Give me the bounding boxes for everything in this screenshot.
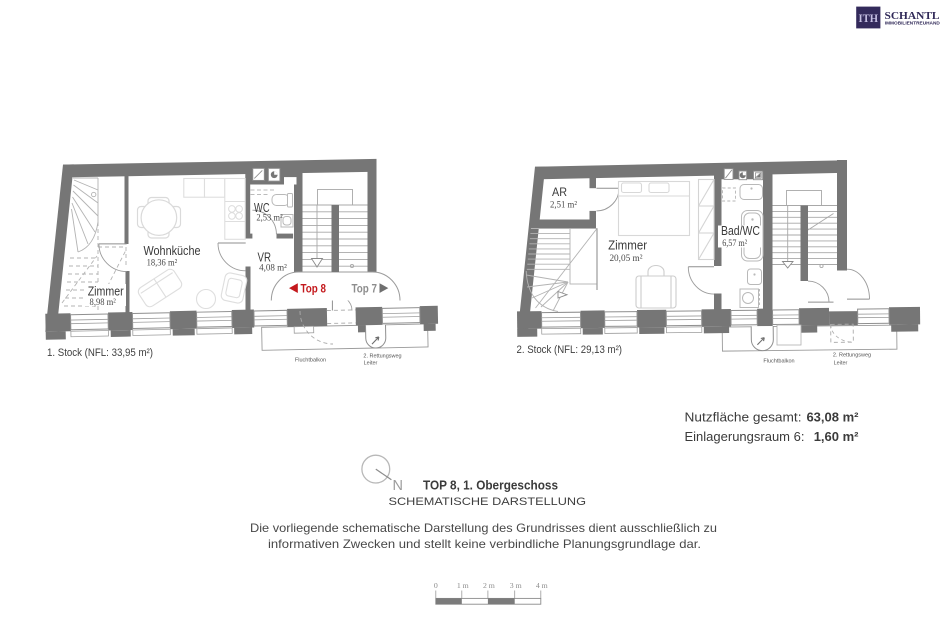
svg-text:6,57 m²: 6,57 m² <box>722 238 747 249</box>
svg-text:63,08 m²: 63,08 m² <box>806 410 859 425</box>
svg-text:1,60 m²: 1,60 m² <box>814 429 859 444</box>
svg-text:4,08 m²: 4,08 m² <box>259 263 287 274</box>
svg-text:2. Rettungsweg: 2. Rettungsweg <box>833 353 871 359</box>
svg-text:informativen Zwecken und stell: informativen Zwecken und stellt keine ve… <box>268 537 701 551</box>
svg-text:Leiter: Leiter <box>364 361 378 367</box>
svg-text:Wohnküche: Wohnküche <box>144 243 201 258</box>
svg-text:3 m: 3 m <box>510 581 522 590</box>
svg-text:18,36 m²: 18,36 m² <box>147 257 178 268</box>
svg-text:AR: AR <box>552 185 567 199</box>
svg-text:8,98 m²: 8,98 m² <box>90 297 116 308</box>
svg-text:Einlagerungsraum 6:: Einlagerungsraum 6: <box>685 429 805 444</box>
svg-text:20,05 m²: 20,05 m² <box>609 253 642 264</box>
svg-text:TOP 8, 1. Obergeschoss: TOP 8, 1. Obergeschoss <box>423 479 558 493</box>
svg-text:Top 7: Top 7 <box>352 282 378 296</box>
svg-text:Fluchtbalkon: Fluchtbalkon <box>763 359 794 365</box>
svg-text:Die vorliegende schematische D: Die vorliegende schematische Darstellung… <box>250 521 717 535</box>
svg-text:0: 0 <box>434 581 438 590</box>
svg-text:2 m: 2 m <box>483 581 495 590</box>
svg-text:Fluchtbalkon: Fluchtbalkon <box>295 358 326 364</box>
svg-text:1 m: 1 m <box>457 581 469 590</box>
svg-text:Bad/WC: Bad/WC <box>721 224 760 238</box>
svg-text:Leiter: Leiter <box>834 361 848 367</box>
svg-text:N: N <box>393 478 403 494</box>
svg-text:1. Stock (NFL: 33,95 m²): 1. Stock (NFL: 33,95 m²) <box>47 347 153 359</box>
svg-text:ITH: ITH <box>859 11 879 25</box>
svg-text:Nutzfläche gesamt:: Nutzfläche gesamt: <box>685 410 802 425</box>
svg-text:2. Rettungsweg: 2. Rettungsweg <box>363 354 401 360</box>
svg-text:Top 8: Top 8 <box>301 282 327 296</box>
svg-text:2. Stock (NFL: 29,13 m²): 2. Stock (NFL: 29,13 m²) <box>517 344 623 356</box>
svg-text:2,53 m²: 2,53 m² <box>256 212 282 223</box>
svg-text:4 m: 4 m <box>536 581 548 590</box>
svg-text:IMMOBILIENTREUHAND: IMMOBILIENTREUHAND <box>885 21 940 26</box>
svg-text:Zimmer: Zimmer <box>608 238 648 253</box>
svg-text:2,51 m²: 2,51 m² <box>550 199 577 210</box>
svg-text:SCHEMATISCHE DARSTELLUNG: SCHEMATISCHE DARSTELLUNG <box>389 496 587 508</box>
